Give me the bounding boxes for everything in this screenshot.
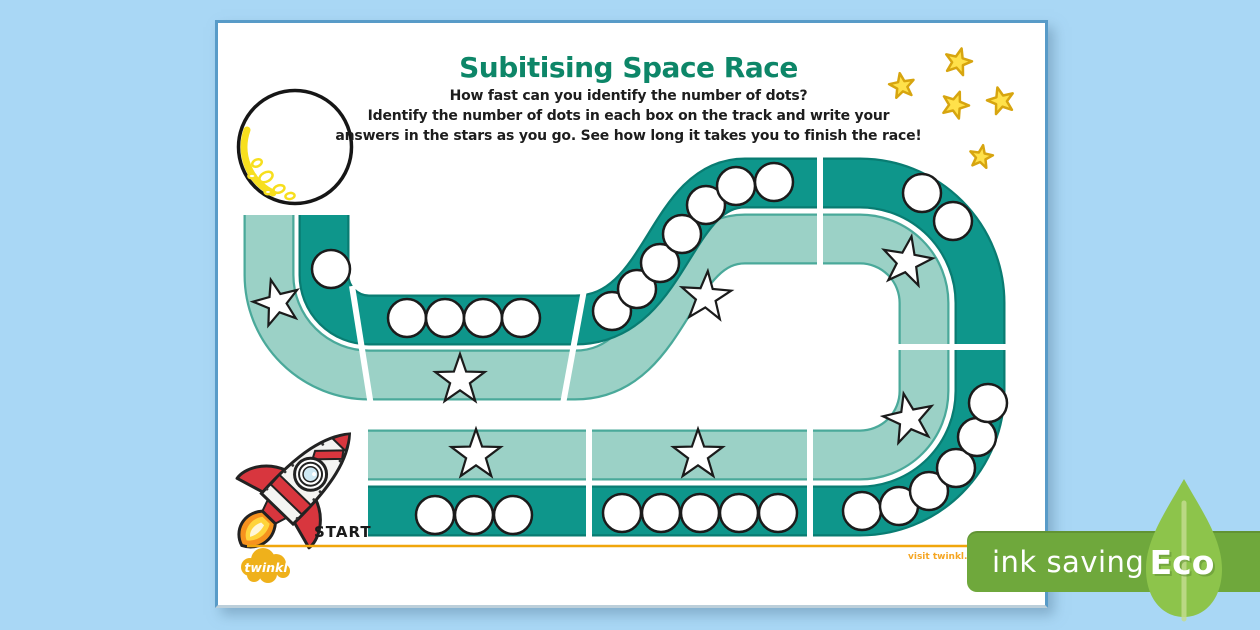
start-label: START	[314, 523, 372, 541]
visit-twinkl-text: visit twinkl.	[908, 552, 967, 562]
eco-label: Eco	[1150, 543, 1215, 582]
ink-saving-label: ink saving	[992, 545, 1144, 579]
page-title: Subitising Space Race	[215, 51, 1042, 84]
instructions-line-1: Identify the number of dots in each box …	[215, 108, 1042, 124]
instructions-line-2: answers in the stars as you go. See how …	[215, 128, 1042, 144]
subtitle: How fast can you identify the number of …	[215, 88, 1042, 104]
screenshot-stage: twinkl Subitising Space Race How fast ca…	[0, 0, 1260, 630]
eco-leaf: Eco Eco	[1136, 477, 1232, 623]
